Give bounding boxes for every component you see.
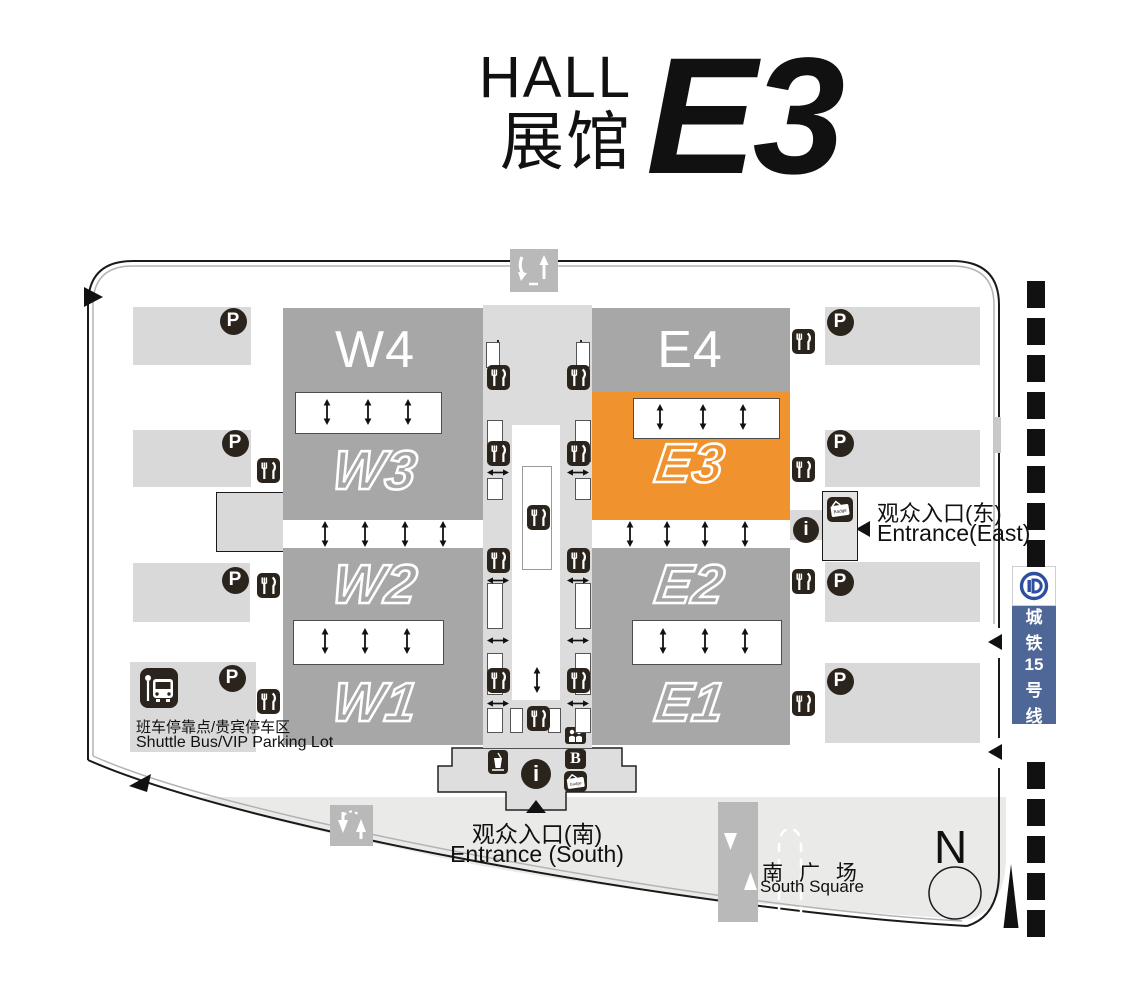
metro-line-dash <box>1027 762 1045 789</box>
corridor-arrow-vertical <box>699 628 711 654</box>
restaurant-icon <box>527 706 550 731</box>
road-arrow-down <box>724 833 737 850</box>
restaurant-icon <box>567 548 590 573</box>
corridor-arrow-vertical <box>697 404 709 430</box>
badge-icon-south: Badge <box>564 771 587 792</box>
parking-icon: P <box>827 430 854 457</box>
band-w3-w2 <box>283 520 483 548</box>
south-road-strip <box>718 802 758 922</box>
metro-line-char: 号 <box>1026 676 1043 701</box>
shuttle-label-en: Shuttle Bus/VIP Parking Lot <box>136 734 333 752</box>
corridor-arrow-vertical <box>737 404 749 430</box>
compass-needle <box>1004 864 1019 928</box>
west-service-arm <box>216 492 283 552</box>
corridor-arrow-vertical <box>319 521 331 547</box>
parking-icon: P <box>219 665 246 692</box>
corridor-arrow-vertical <box>362 399 374 425</box>
bus-icon <box>140 668 178 708</box>
east-entrance-label-en: Entrance(East) <box>877 520 1030 547</box>
restaurant-icon <box>487 668 510 693</box>
restaurant-icon <box>792 329 815 354</box>
baggage-icon: B <box>565 749 586 769</box>
corridor-arrow-vertical <box>739 628 751 654</box>
restaurant-icon <box>527 505 550 530</box>
u-turn-icon <box>330 805 373 846</box>
corridor-door <box>487 583 503 629</box>
corridor-door <box>575 478 591 500</box>
corridor-door <box>575 583 591 629</box>
corridor-arrow-horizontal <box>567 573 589 584</box>
corridor-arrow-vertical <box>739 521 751 547</box>
hall-label-w1: W1 <box>328 670 421 734</box>
north-gate-icon <box>510 249 558 292</box>
corridor-arrow-horizontal <box>567 696 589 707</box>
corridor-arrow-horizontal <box>567 633 589 644</box>
restaurant-icon <box>487 548 510 573</box>
road-arrow-up <box>744 872 757 890</box>
parking-icon: P <box>827 309 854 336</box>
metro-line-dash <box>1027 873 1045 900</box>
parking-icon: P <box>827 668 854 695</box>
corridor-arrow-horizontal <box>487 633 509 644</box>
metro-line-dash <box>1027 799 1045 826</box>
metro-line-dash <box>1027 503 1045 530</box>
road-arrow-right-lower <box>988 744 1002 760</box>
parking-icon: P <box>222 567 249 594</box>
road-arrow-right-upper <box>988 634 1002 650</box>
right-gate-mark <box>994 417 1001 453</box>
corridor-door <box>575 708 591 733</box>
restaurant-icon <box>257 458 280 483</box>
restaurant-icon <box>257 689 280 714</box>
corridor-arrow-vertical <box>401 628 413 654</box>
metro-line-dash <box>1027 836 1045 863</box>
corridor-arrow-vertical <box>624 521 636 547</box>
north-label: N <box>934 824 967 870</box>
restaurant-icon <box>567 365 590 390</box>
hall-label-w3: W3 <box>328 438 421 502</box>
corridor-arrow-vertical <box>321 399 333 425</box>
hall-label-w2: W2 <box>328 552 421 616</box>
hall-label-e1: E1 <box>651 670 729 734</box>
metro-line-dash <box>1027 466 1045 493</box>
hall-label-e4: E4 <box>657 320 723 380</box>
corridor-arrow-horizontal <box>487 465 509 476</box>
hall-label-w4: W4 <box>335 320 415 380</box>
corridor-arrow-vertical <box>359 628 371 654</box>
metro-line-dash <box>1027 281 1045 308</box>
metro-logo-box <box>1012 566 1056 606</box>
metro-line-char: 铁 <box>1026 629 1043 654</box>
info-icon-east: i <box>793 517 819 543</box>
corridor-arrow-vertical <box>661 521 673 547</box>
parking-icon: P <box>827 569 854 596</box>
south-entrance-label-en: Entrance (South) <box>450 841 624 868</box>
metro-line-dash <box>1027 540 1045 567</box>
metro-line-dash <box>1027 910 1045 937</box>
corridor-arrow-vertical <box>531 667 543 693</box>
corridor-arrow-vertical <box>319 628 331 654</box>
drink-icon <box>488 750 508 774</box>
corridor-door <box>548 708 561 733</box>
restaurant-icon <box>567 441 590 466</box>
south-square-label-en: South Square <box>760 877 864 897</box>
restaurant-icon <box>792 457 815 482</box>
corridor-arrow-vertical <box>399 521 411 547</box>
metro-line-char: 线 <box>1026 702 1043 727</box>
corridor-door <box>510 708 523 733</box>
info-icon-south: i <box>521 759 551 789</box>
east-entrance-arrow <box>856 521 870 537</box>
parking-icon: P <box>222 430 249 457</box>
metro-line-char: 15 <box>1025 655 1044 675</box>
metro-line-15-badge: 城铁15号线 <box>1012 606 1056 724</box>
corridor-arrow-vertical <box>699 521 711 547</box>
corridor-arrow-horizontal <box>487 696 509 707</box>
hall-label-e3: E3 <box>651 431 729 495</box>
metro-logo-icon <box>1018 570 1050 602</box>
band-e3-e2 <box>592 520 790 548</box>
badge-icon-east: Badge <box>827 497 853 522</box>
corridor-door <box>487 708 503 733</box>
metro-line-dash <box>1027 392 1045 419</box>
corridor-arrow-vertical <box>654 404 666 430</box>
restaurant-icon <box>567 668 590 693</box>
corridor-arrow-horizontal <box>567 465 589 476</box>
hall-label-e2: E2 <box>651 552 729 616</box>
restaurant-icon <box>257 573 280 598</box>
corridor-arrow-horizontal <box>487 573 509 584</box>
corridor-arrow-vertical <box>657 628 669 654</box>
corridor-door <box>487 478 503 500</box>
restaurant-icon <box>487 365 510 390</box>
restaurant-icon <box>487 441 510 466</box>
metro-line-dash <box>1027 429 1045 456</box>
corridor-arrow-vertical <box>359 521 371 547</box>
metro-line-char: 城 <box>1026 603 1043 628</box>
metro-line-dash <box>1027 318 1045 345</box>
restaurant-icon <box>792 569 815 594</box>
corridor-arrow-vertical <box>437 521 449 547</box>
hall-map-page: HALL 展馆 E3 <box>0 0 1136 981</box>
corridor-arrow-vertical <box>402 399 414 425</box>
restaurant-icon <box>792 691 815 716</box>
metro-line-dash <box>1027 355 1045 382</box>
parking-icon: P <box>220 308 247 335</box>
